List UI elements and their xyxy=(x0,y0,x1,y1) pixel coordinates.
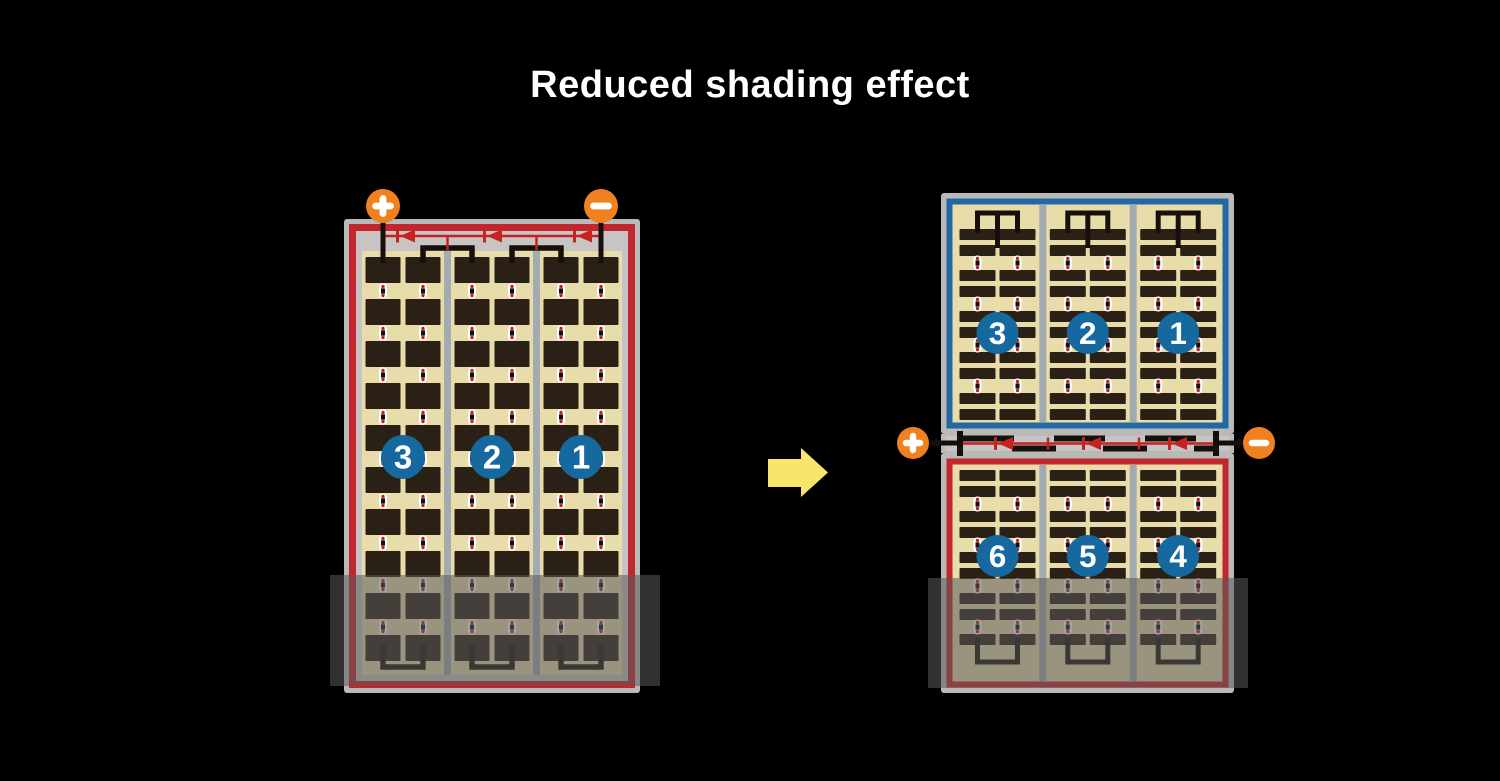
connector-dot xyxy=(559,537,562,540)
connector-dot xyxy=(470,294,473,297)
connector-dot xyxy=(1157,498,1160,501)
connector-dot xyxy=(381,378,384,381)
half-cut-cell xyxy=(1050,409,1086,420)
solar-cell xyxy=(366,551,401,577)
connector-bar xyxy=(1106,342,1110,347)
connector-dot xyxy=(976,507,979,510)
connector-dot xyxy=(381,537,384,540)
solar-cell xyxy=(584,383,619,409)
connector-bar xyxy=(1156,383,1160,388)
half-cut-cell xyxy=(1000,368,1036,379)
half-cut-cell xyxy=(1090,352,1126,363)
solar-cell xyxy=(544,551,579,577)
solar-cell xyxy=(406,509,441,535)
connector-bar xyxy=(1156,260,1160,265)
connector-dot xyxy=(470,336,473,339)
connector-dot xyxy=(510,294,513,297)
connector-bar xyxy=(599,498,603,503)
connector-dot xyxy=(1016,266,1019,269)
solar-cell xyxy=(455,509,490,535)
diode-cathode-bar xyxy=(1168,437,1171,450)
solar-cell xyxy=(544,509,579,535)
half-cut-cell xyxy=(1050,486,1086,497)
half-cut-cell xyxy=(1140,486,1176,497)
string-number-label: 3 xyxy=(989,315,1007,351)
connector-dot xyxy=(559,495,562,498)
solar-cell xyxy=(495,509,530,535)
connector-dot xyxy=(599,294,602,297)
connector-dot xyxy=(1066,307,1069,310)
connector-dot xyxy=(470,495,473,498)
connector-dot xyxy=(381,336,384,339)
solar-cell xyxy=(495,551,530,577)
connector-dot xyxy=(1066,380,1069,383)
half-cut-cell xyxy=(1180,409,1216,420)
connector-dot xyxy=(421,495,424,498)
connector-dot xyxy=(1106,507,1109,510)
connector-bar xyxy=(1016,301,1020,306)
connector-dot xyxy=(1016,389,1019,392)
connector-dot xyxy=(599,285,602,288)
connector-bar xyxy=(470,330,474,335)
wire-node xyxy=(931,438,941,448)
solar-cell xyxy=(495,299,530,325)
connector-dot xyxy=(510,495,513,498)
connector-dot xyxy=(599,537,602,540)
diode-cathode-bar xyxy=(573,230,576,243)
connector-dot xyxy=(1016,498,1019,501)
half-cut-cell xyxy=(1050,368,1086,379)
connector-dot xyxy=(470,537,473,540)
half-cut-cell xyxy=(1180,245,1216,256)
connector-dot xyxy=(1066,257,1069,260)
half-cut-cell xyxy=(960,245,996,256)
connector-dot xyxy=(421,504,424,507)
connector-dot xyxy=(510,420,513,423)
half-cut-cell xyxy=(1090,286,1126,297)
connector-dot xyxy=(1157,539,1160,542)
half-cut-cell xyxy=(1090,393,1126,404)
connector-dot xyxy=(470,504,473,507)
connector-bar xyxy=(1156,501,1160,506)
connector-dot xyxy=(381,411,384,414)
half-cut-cell xyxy=(960,409,996,420)
connector-bar xyxy=(470,288,474,293)
connector-dot xyxy=(1066,539,1069,542)
string-number-label: 2 xyxy=(1079,315,1097,351)
half-cut-cell xyxy=(960,486,996,497)
connector-bar xyxy=(1106,383,1110,388)
connector-bar xyxy=(1066,501,1070,506)
half-cut-cell xyxy=(1140,511,1176,522)
connector-bar xyxy=(559,540,563,545)
connector-dot xyxy=(510,378,513,381)
connector-dot xyxy=(1016,257,1019,260)
half-cut-cell xyxy=(1180,470,1216,481)
plus-icon xyxy=(380,195,387,217)
plus-terminal xyxy=(366,189,400,223)
connector-bar xyxy=(1156,301,1160,306)
connector-dot xyxy=(1016,507,1019,510)
connector-dot xyxy=(976,380,979,383)
solar-cell xyxy=(544,383,579,409)
connector-bar xyxy=(381,540,385,545)
connector-dot xyxy=(510,327,513,330)
minus-terminal xyxy=(584,189,618,223)
connector-dot xyxy=(421,294,424,297)
connector-dot xyxy=(599,336,602,339)
half-cut-cell xyxy=(1180,486,1216,497)
junction-busbar xyxy=(1194,446,1216,452)
connector-dot xyxy=(1016,380,1019,383)
connector-bar xyxy=(1016,383,1020,388)
connector-bar xyxy=(470,372,474,377)
half-cut-cell xyxy=(1000,393,1036,404)
connector-bar xyxy=(1106,260,1110,265)
connector-bar xyxy=(470,540,474,545)
connector-bar xyxy=(559,330,563,335)
connector-dot xyxy=(1106,298,1109,301)
connector-dot xyxy=(1106,498,1109,501)
transition-arrow xyxy=(768,448,828,497)
connector-bar xyxy=(421,414,425,419)
right-module: 321654 xyxy=(897,193,1275,693)
connector-dot xyxy=(1197,507,1200,510)
connector-bar xyxy=(421,498,425,503)
string-number-label: 2 xyxy=(483,439,501,476)
connector-bar xyxy=(381,372,385,377)
connector-dot xyxy=(1157,380,1160,383)
connector-bar xyxy=(470,498,474,503)
connector-bar xyxy=(599,372,603,377)
solar-cell xyxy=(455,383,490,409)
connector-dot xyxy=(1106,307,1109,310)
connector-bar xyxy=(1066,383,1070,388)
half-cut-cell xyxy=(1140,368,1176,379)
connector-bar xyxy=(1196,301,1200,306)
half-cut-cell xyxy=(1090,368,1126,379)
connector-dot xyxy=(1157,348,1160,351)
connector-dot xyxy=(381,546,384,549)
half-cut-cell xyxy=(1180,393,1216,404)
connector-dot xyxy=(1197,348,1200,351)
connector-dot xyxy=(381,369,384,372)
connector-dot xyxy=(559,294,562,297)
connector-bar xyxy=(559,414,563,419)
half-cut-cell xyxy=(1140,352,1176,363)
half-cut-cell xyxy=(1050,352,1086,363)
connector-bar xyxy=(599,288,603,293)
solar-cell xyxy=(366,299,401,325)
half-cut-cell xyxy=(960,470,996,481)
half-cut-cell xyxy=(1000,486,1036,497)
solar-cell xyxy=(584,551,619,577)
connector-dot xyxy=(381,504,384,507)
half-cut-cell xyxy=(1090,245,1126,256)
minus-icon xyxy=(590,203,612,210)
connector-dot xyxy=(1157,266,1160,269)
connector-dot xyxy=(1157,298,1160,301)
diode-cathode-bar xyxy=(483,230,486,243)
diode-cathode-bar xyxy=(396,230,399,243)
wire-node xyxy=(1234,438,1244,448)
solar-cell xyxy=(544,299,579,325)
solar-cell xyxy=(406,299,441,325)
connector-dot xyxy=(1197,257,1200,260)
connector-dot xyxy=(470,285,473,288)
half-cut-cell xyxy=(1090,409,1126,420)
connector-dot xyxy=(976,298,979,301)
connector-dot xyxy=(421,285,424,288)
connector-bar xyxy=(1066,342,1070,347)
solar-cell xyxy=(366,383,401,409)
connector-dot xyxy=(1066,507,1069,510)
connector-dot xyxy=(1106,266,1109,269)
solar-cell xyxy=(544,341,579,367)
plus-terminal xyxy=(897,427,929,459)
left-module: 321 xyxy=(330,189,660,693)
connector-dot xyxy=(1106,257,1109,260)
solar-cell xyxy=(406,383,441,409)
connector-dot xyxy=(510,537,513,540)
connector-bar xyxy=(381,498,385,503)
connector-bar xyxy=(510,498,514,503)
string-number-label: 6 xyxy=(989,538,1007,574)
connector-dot xyxy=(470,420,473,423)
connector-dot xyxy=(421,369,424,372)
connector-dot xyxy=(599,546,602,549)
right-top-panel: 321 xyxy=(941,193,1234,434)
half-cut-cell xyxy=(1180,352,1216,363)
connector-bar xyxy=(510,540,514,545)
connector-dot xyxy=(470,327,473,330)
connector-dot xyxy=(559,369,562,372)
solar-cell xyxy=(584,341,619,367)
connector-dot xyxy=(381,420,384,423)
connector-dot xyxy=(1157,507,1160,510)
connector-dot xyxy=(421,327,424,330)
connector-bar xyxy=(976,342,980,347)
diode-cathode-bar xyxy=(994,437,997,450)
solar-cell xyxy=(455,551,490,577)
connector-dot xyxy=(1066,298,1069,301)
solar-cell xyxy=(406,341,441,367)
connector-dot xyxy=(1197,498,1200,501)
connector-dot xyxy=(1197,298,1200,301)
connector-bar xyxy=(421,372,425,377)
solar-cell xyxy=(406,551,441,577)
junction-busbar xyxy=(1103,446,1147,452)
connector-bar xyxy=(510,288,514,293)
connector-bar xyxy=(976,301,980,306)
connector-dot xyxy=(510,411,513,414)
half-cut-cell xyxy=(1050,511,1086,522)
connector-dot xyxy=(470,378,473,381)
half-cut-cell xyxy=(1180,286,1216,297)
connector-dot xyxy=(976,348,979,351)
half-cut-cell xyxy=(1000,245,1036,256)
half-cut-cell xyxy=(1000,470,1036,481)
connector-bar xyxy=(421,330,425,335)
connector-bar xyxy=(1196,260,1200,265)
connector-dot xyxy=(1016,307,1019,310)
connector-dot xyxy=(599,504,602,507)
shade-overlay xyxy=(928,578,1248,688)
junction-busbar xyxy=(1012,446,1056,452)
connector-bar xyxy=(559,372,563,377)
half-cut-cell xyxy=(960,270,996,281)
connector-bar xyxy=(421,540,425,545)
connector-dot xyxy=(976,539,979,542)
connector-bar xyxy=(381,330,385,335)
connector-dot xyxy=(421,420,424,423)
connector-bar xyxy=(599,540,603,545)
connector-dot xyxy=(559,327,562,330)
connector-dot xyxy=(1016,539,1019,542)
half-cut-cell xyxy=(960,286,996,297)
half-cut-cell xyxy=(1180,368,1216,379)
connector-bar xyxy=(1016,342,1020,347)
connector-dot xyxy=(510,546,513,549)
connector-bar xyxy=(559,498,563,503)
connector-dot xyxy=(559,420,562,423)
connector-dot xyxy=(1197,539,1200,542)
connector-dot xyxy=(421,546,424,549)
connector-dot xyxy=(381,285,384,288)
shading-comparison-diagram: 321321654 xyxy=(0,0,1500,781)
half-cut-cell xyxy=(960,368,996,379)
half-cut-cell xyxy=(1000,352,1036,363)
minus-terminal xyxy=(1243,427,1275,459)
half-cut-cell xyxy=(1090,486,1126,497)
connector-dot xyxy=(421,411,424,414)
connector-bar xyxy=(976,501,980,506)
connector-dot xyxy=(599,327,602,330)
half-cut-cell xyxy=(1050,270,1086,281)
half-cut-cell xyxy=(960,511,996,522)
string-number-label: 1 xyxy=(1169,315,1187,351)
connector-bar xyxy=(421,288,425,293)
connector-dot xyxy=(510,369,513,372)
connector-dot xyxy=(976,307,979,310)
half-cut-cell xyxy=(1140,409,1176,420)
half-cut-cell xyxy=(1050,470,1086,481)
connector-bar xyxy=(510,414,514,419)
connector-bar xyxy=(1016,260,1020,265)
half-cut-cell xyxy=(1000,270,1036,281)
connector-dot xyxy=(381,495,384,498)
connector-bar xyxy=(1016,501,1020,506)
string-number-label: 3 xyxy=(394,439,412,476)
half-cut-cell xyxy=(1090,511,1126,522)
connector-dot xyxy=(1157,389,1160,392)
connector-dot xyxy=(421,537,424,540)
string-number-label: 4 xyxy=(1169,538,1187,574)
half-cut-cell xyxy=(1140,270,1176,281)
connector-dot xyxy=(510,336,513,339)
right-bottom-panel: 654 xyxy=(928,453,1248,693)
solar-cell xyxy=(584,299,619,325)
connector-dot xyxy=(421,378,424,381)
connector-dot xyxy=(510,285,513,288)
right-arrow-icon xyxy=(768,448,828,497)
connector-bar xyxy=(1196,501,1200,506)
half-cut-cell xyxy=(1050,286,1086,297)
connector-dot xyxy=(599,411,602,414)
half-cut-cell xyxy=(1140,393,1176,404)
connector-bar xyxy=(599,414,603,419)
connector-dot xyxy=(1106,389,1109,392)
half-cut-cell xyxy=(1050,393,1086,404)
solar-cell xyxy=(495,383,530,409)
connector-dot xyxy=(1016,298,1019,301)
connector-bar xyxy=(510,372,514,377)
connector-bar xyxy=(1066,301,1070,306)
diode-cathode-bar xyxy=(1082,437,1085,450)
connector-dot xyxy=(559,546,562,549)
connector-bar xyxy=(510,330,514,335)
half-cut-cell xyxy=(1090,470,1126,481)
connector-dot xyxy=(559,285,562,288)
connector-bar xyxy=(1196,383,1200,388)
connector-dot xyxy=(1197,266,1200,269)
connector-bar xyxy=(1066,260,1070,265)
minus-icon xyxy=(1249,440,1269,446)
half-cut-cell xyxy=(1180,270,1216,281)
connector-dot xyxy=(470,369,473,372)
connector-bar xyxy=(559,288,563,293)
connector-dot xyxy=(1157,307,1160,310)
connector-dot xyxy=(381,294,384,297)
string-number-label: 5 xyxy=(1079,538,1097,574)
connector-dot xyxy=(599,369,602,372)
half-cut-cell xyxy=(1140,470,1176,481)
solar-cell xyxy=(455,341,490,367)
connector-bar xyxy=(1156,342,1160,347)
connector-dot xyxy=(599,495,602,498)
connector-dot xyxy=(470,546,473,549)
diagram-canvas: Reduced shading effect 321321654 xyxy=(0,0,1500,781)
connector-bar xyxy=(599,330,603,335)
shade-overlay xyxy=(330,575,660,686)
solar-cell xyxy=(366,509,401,535)
page-title: Reduced shading effect xyxy=(0,64,1500,107)
connector-dot xyxy=(559,504,562,507)
connector-bar xyxy=(381,288,385,293)
connector-dot xyxy=(510,504,513,507)
connector-dot xyxy=(421,336,424,339)
solar-cell xyxy=(366,341,401,367)
connector-dot xyxy=(1066,389,1069,392)
connector-dot xyxy=(470,411,473,414)
connector-dot xyxy=(1066,498,1069,501)
connector-dot xyxy=(1106,380,1109,383)
connector-dot xyxy=(1106,539,1109,542)
connector-bar xyxy=(1106,301,1110,306)
connector-dot xyxy=(559,378,562,381)
connector-dot xyxy=(1066,266,1069,269)
column-separator xyxy=(1039,205,1046,422)
column-separator xyxy=(1130,205,1137,422)
connector-dot xyxy=(1197,389,1200,392)
half-cut-cell xyxy=(1000,409,1036,420)
connector-dot xyxy=(1066,348,1069,351)
connector-dot xyxy=(599,420,602,423)
connector-dot xyxy=(1197,307,1200,310)
connector-dot xyxy=(1106,348,1109,351)
connector-dot xyxy=(1157,257,1160,260)
half-cut-cell xyxy=(1000,511,1036,522)
